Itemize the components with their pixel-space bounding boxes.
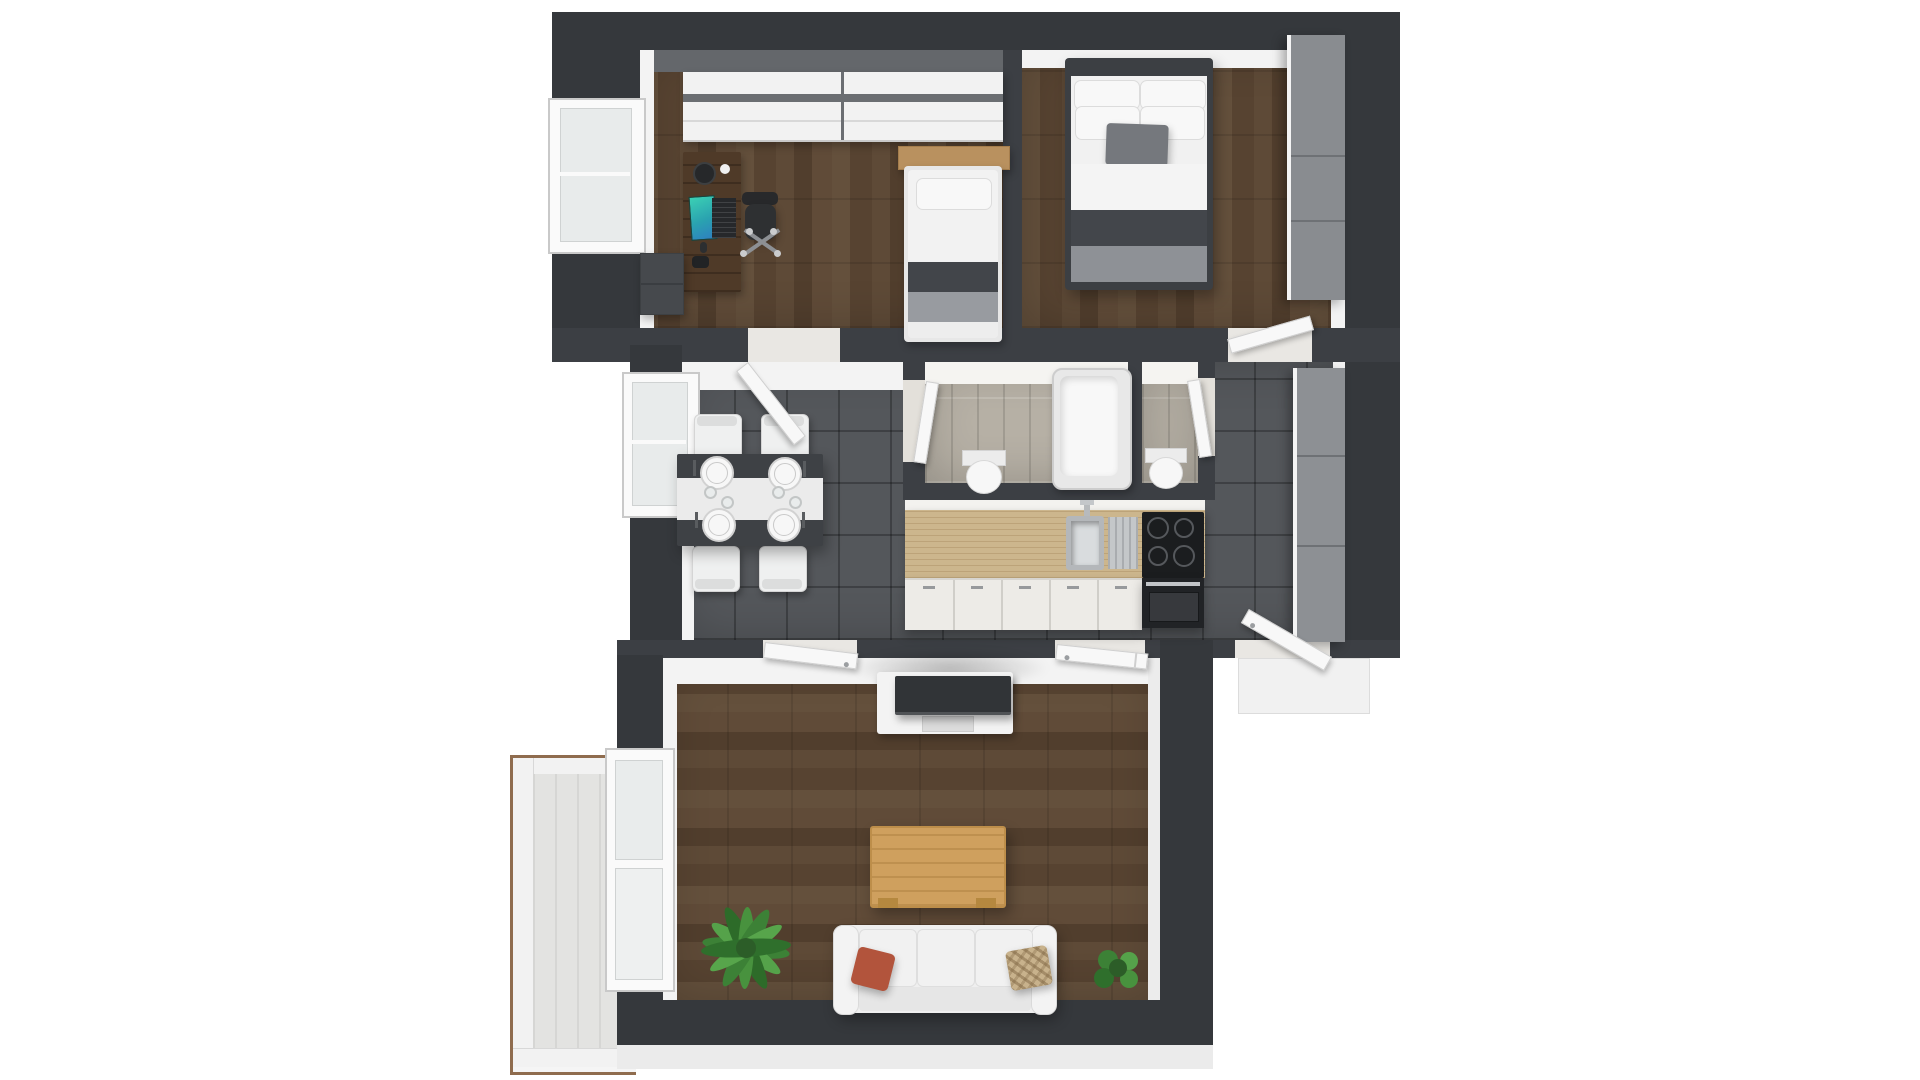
mid-wall-seg-c	[1312, 328, 1400, 362]
hallway-wardrobe-seam	[1297, 545, 1345, 547]
double-bed	[1065, 58, 1213, 290]
balcony-rail-bottom	[513, 1048, 630, 1067]
living-right-exterior-wall	[1160, 640, 1213, 1045]
office-window-mullion	[560, 172, 630, 176]
office-wardrobe	[683, 72, 1003, 142]
cabinet-seam	[1049, 580, 1051, 630]
oven-handle	[1146, 582, 1200, 586]
plate	[702, 508, 736, 542]
bathtub	[1052, 368, 1132, 490]
mouse	[700, 242, 707, 253]
cabinet-handle	[971, 586, 983, 589]
coffee-table-foot	[878, 898, 898, 908]
double-bed-band	[1071, 210, 1207, 246]
cutlery	[803, 461, 806, 477]
kitchen-cabinet-fronts	[905, 578, 1142, 630]
balcony-door-pane	[615, 868, 663, 980]
cutlery	[693, 460, 696, 476]
single-bed-blanket	[908, 292, 998, 322]
dining-chair-backrest	[695, 579, 735, 589]
cabinet-seam	[1001, 580, 1003, 630]
office-dresser-seam	[641, 283, 683, 285]
wc-toilet	[1145, 448, 1185, 490]
cutlery	[802, 512, 805, 528]
tv-sideboard-drawer	[922, 716, 974, 732]
chair-wheel	[746, 228, 753, 235]
cabinet-seam	[1097, 580, 1099, 630]
drinking-glass	[789, 496, 802, 509]
cooktop-burner	[1174, 518, 1194, 538]
entrance-landing	[1238, 658, 1370, 714]
wc-right-wall-b	[1198, 456, 1215, 483]
plant-center	[736, 938, 756, 958]
plant-tuft	[1109, 959, 1127, 977]
bottom-footing	[617, 1045, 1213, 1069]
plate	[767, 508, 801, 542]
office-wardrobe-divider	[841, 72, 844, 140]
floor-plan-canvas	[0, 0, 1920, 1080]
oven-window	[1149, 592, 1199, 622]
dining-table	[677, 454, 823, 546]
office-chair	[740, 190, 784, 276]
hall-bottom-wall-d	[1330, 640, 1400, 658]
headphones-icon	[693, 162, 716, 185]
drinking-glass	[772, 486, 785, 499]
bathroom-toilet	[962, 450, 1004, 494]
mug	[720, 164, 730, 174]
large-plant	[696, 896, 796, 1000]
coffee-table	[870, 826, 1006, 908]
small-plant	[1092, 942, 1144, 994]
chair-wheel	[770, 228, 777, 235]
double-bed-accent-pillow	[1105, 123, 1168, 167]
plate	[768, 457, 802, 491]
dining-chair	[759, 546, 807, 592]
single-bed-foot	[908, 322, 998, 338]
kitchen-faucet-spout	[1080, 500, 1094, 505]
balcony-rail-left	[513, 758, 534, 1066]
bedroom-wardrobe-seam	[1291, 220, 1345, 222]
door-seam	[1134, 653, 1137, 667]
cabinet-handle	[923, 586, 935, 589]
office-top-wall-face	[640, 50, 1003, 72]
door-handle	[844, 662, 850, 668]
office-door-threshold	[748, 328, 840, 362]
cutlery	[695, 512, 698, 528]
bathtub-basin	[1060, 376, 1118, 476]
bathroom-left-wall-b	[903, 462, 925, 483]
cabinet-handle	[1067, 586, 1079, 589]
drinking-glass	[721, 496, 734, 509]
single-bed-pillow	[916, 178, 992, 210]
hallway-wardrobe	[1293, 368, 1345, 642]
sofa-seat-cushion	[917, 929, 975, 987]
door-handle	[1064, 655, 1069, 660]
toilet-bowl	[966, 460, 1002, 494]
kitchen-drainboard	[1108, 517, 1138, 569]
dining-chair-backrest	[697, 416, 737, 426]
tv-flatscreen	[895, 676, 1011, 715]
chair-wheel	[740, 250, 747, 257]
toilet-bowl	[1149, 457, 1183, 489]
drinking-glass	[704, 486, 717, 499]
single-bed	[898, 146, 1008, 342]
balcony-door-window	[605, 748, 675, 992]
hallway-window-mullion	[632, 440, 686, 444]
sofa	[833, 925, 1055, 1013]
oven-front	[1142, 578, 1204, 628]
sofa-beige-pillow	[1005, 945, 1053, 992]
hallway-wardrobe-front-edge	[1293, 368, 1297, 642]
living-right-wall-face	[1148, 658, 1160, 1000]
dining-chair-backrest	[762, 579, 802, 589]
balcony-window-pane	[615, 760, 663, 860]
double-bed-duvet	[1071, 164, 1207, 210]
hall-top-wall-face	[682, 362, 903, 390]
cooktop-burner	[1147, 517, 1169, 539]
bathroom-left-wall-a	[903, 362, 925, 380]
cabinet-handle	[1019, 586, 1031, 589]
cabinet-seam	[953, 580, 955, 630]
coffee-table-foot	[976, 898, 996, 908]
wc-right-wall-a	[1198, 362, 1215, 378]
top-exterior-wall	[552, 12, 1400, 50]
door-handle	[1249, 622, 1256, 629]
kitchen-sink-basin	[1071, 521, 1099, 565]
cooktop-burner	[1173, 545, 1195, 567]
double-bed-blanket	[1071, 246, 1207, 282]
bedroom-wardrobe	[1287, 35, 1345, 300]
gamepad-icon	[692, 256, 709, 268]
office-window	[548, 98, 646, 254]
cooktop-burner	[1148, 546, 1168, 566]
kitchen-backsplash	[905, 500, 1205, 510]
chair-wheel	[774, 250, 781, 257]
bedroom-wardrobe-front-edge	[1287, 35, 1291, 300]
dining-chair	[692, 546, 740, 592]
cooktop	[1142, 512, 1204, 578]
kitchen-sink	[1066, 516, 1104, 570]
office-dresser	[640, 253, 684, 315]
plate	[700, 456, 734, 490]
bedroom-wardrobe-seam	[1291, 155, 1345, 157]
hallway-wardrobe-seam	[1297, 455, 1345, 457]
cabinet-handle	[1115, 586, 1127, 589]
office-desk	[683, 152, 741, 292]
single-bed-band	[908, 262, 998, 292]
laptop-keyboard	[712, 198, 736, 238]
